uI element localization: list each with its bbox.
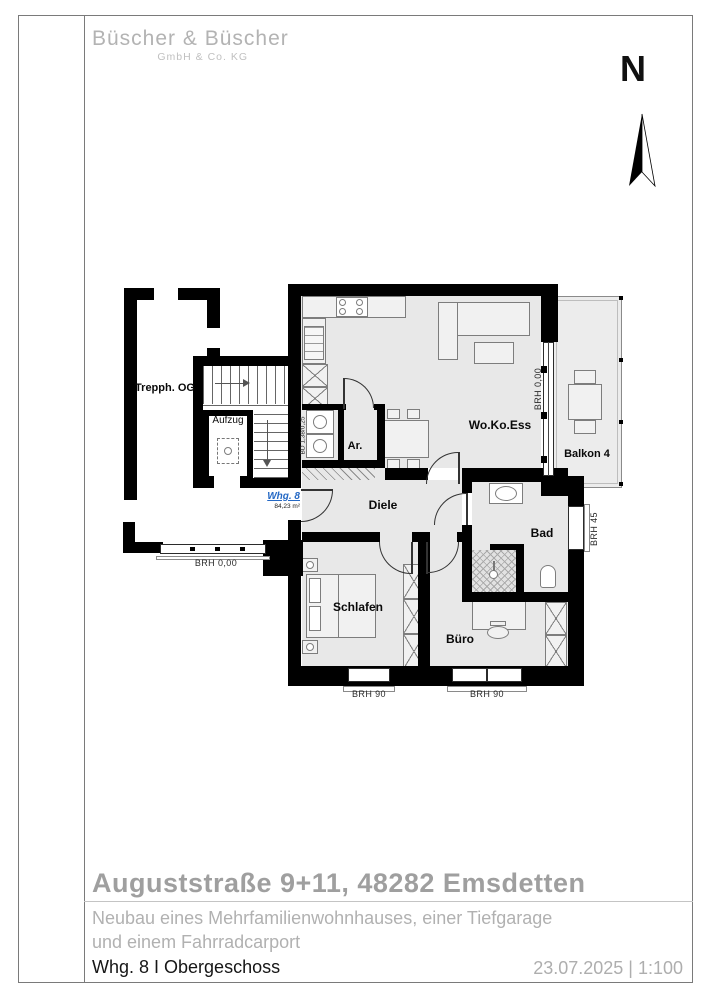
elevator-label: Aufzug xyxy=(205,415,251,426)
balcony-railing-post xyxy=(619,358,623,362)
adjacent-wall xyxy=(207,288,220,328)
wall xyxy=(516,548,524,596)
burner-icon xyxy=(356,299,363,306)
adjacent-wall xyxy=(207,348,220,358)
adjacent-wall xyxy=(123,542,163,553)
office-label: Büro xyxy=(436,632,484,646)
stair-hall-window xyxy=(160,544,266,554)
desk-chair xyxy=(487,626,509,639)
window-tick xyxy=(240,547,245,551)
elevator-door-gap xyxy=(214,476,240,488)
dining-table xyxy=(383,420,429,458)
nightstand-lamp-icon xyxy=(306,561,314,569)
sheet-name: Whg. 8 I Obergeschoss xyxy=(92,957,280,978)
dryer-drum-icon xyxy=(313,439,327,453)
wall xyxy=(302,532,380,542)
wall xyxy=(288,666,584,686)
office-wardrobe xyxy=(545,602,567,635)
oven-icon xyxy=(304,326,324,360)
balcony-railing-post xyxy=(619,420,623,424)
company-logo-suffix: GmbH & Co. KG xyxy=(92,51,248,63)
wall xyxy=(338,404,344,468)
sheet-subtitle-line1: Neubau eines Mehrfamilienwohnhauses, ein… xyxy=(92,908,552,929)
bath-sink-basin xyxy=(495,486,517,501)
titleblock-divider xyxy=(84,901,693,902)
balcony-chair xyxy=(574,420,596,434)
storage-label: Ar. xyxy=(340,440,370,452)
stair-arrow-right xyxy=(243,379,250,387)
shower-stem xyxy=(493,561,495,571)
left-window-annotation: BRH 0,00 xyxy=(184,558,248,568)
toilet-icon xyxy=(540,565,556,588)
burner-icon xyxy=(356,308,363,315)
north-arrow-icon xyxy=(626,112,658,190)
stairwell-wall xyxy=(193,478,288,488)
window-tick xyxy=(190,547,195,551)
desk-chair-back xyxy=(490,621,506,626)
wall xyxy=(385,468,428,480)
north-label: N xyxy=(620,48,646,90)
balcony-railing-post xyxy=(619,482,623,486)
living-label: Wo.Ko.Ess xyxy=(450,418,550,432)
sheet-date-scale: 23.07.2025 | 1:100 xyxy=(413,958,683,979)
wall xyxy=(541,284,558,342)
balcony-railing-post xyxy=(619,296,623,300)
dining-chair xyxy=(407,409,420,419)
bath-window xyxy=(568,506,584,550)
doormat-hatch xyxy=(302,466,375,480)
sofa-side xyxy=(438,302,458,360)
bath-door-leaf xyxy=(466,493,468,525)
kitchen-tall-cabinet xyxy=(302,364,328,387)
company-logo: Büscher & Büscher xyxy=(92,27,289,51)
dining-chair xyxy=(387,409,400,419)
nightstand-lamp-icon xyxy=(306,643,314,651)
sheet-title: Auguststraße 9+11, 48282 Emsdetten xyxy=(92,868,585,899)
window-tick xyxy=(215,547,220,551)
living-door-leaf xyxy=(458,452,460,484)
binding-margin-line xyxy=(84,15,85,983)
wall xyxy=(462,525,472,592)
stair-arrow-down xyxy=(263,460,271,467)
stair-direction-line xyxy=(215,383,243,384)
bedroom-door-leaf xyxy=(411,542,413,574)
duct-annotation: BD 1,38/0,25 xyxy=(300,409,307,463)
burner-icon xyxy=(339,308,346,315)
wall xyxy=(462,482,472,493)
elevator-symbol-dot xyxy=(224,447,232,455)
adjacent-wall xyxy=(124,288,137,500)
burner-icon xyxy=(339,299,346,306)
wall xyxy=(490,544,524,550)
balcony-table xyxy=(568,384,602,420)
office-window-annotation: BRH 90 xyxy=(453,689,521,699)
balcony-glass-centerline xyxy=(548,342,549,476)
wall xyxy=(302,460,385,468)
stairwell-wall xyxy=(193,356,203,488)
balcony-chair xyxy=(574,370,596,384)
washer-drum-icon xyxy=(313,415,327,429)
coffee-table xyxy=(474,342,514,364)
glass-tick xyxy=(541,456,547,463)
stairwell-label: Trepph. OG xyxy=(128,382,202,394)
apartment-area-label: 84,23 m² xyxy=(250,503,300,510)
wall xyxy=(377,404,385,468)
office-wardrobe xyxy=(545,635,567,668)
balcony-label: Balkon 4 xyxy=(554,448,620,460)
wall xyxy=(288,284,558,296)
office-window-mullion xyxy=(486,668,488,682)
bedroom-window xyxy=(348,668,390,682)
stair-direction-line xyxy=(267,420,268,460)
apartment-id-label: Whg. 8 xyxy=(248,491,300,502)
bedroom-window-annotation: BRH 90 xyxy=(342,689,396,699)
hall-label: Diele xyxy=(358,498,408,512)
bath-label: Bad xyxy=(520,526,564,540)
stair-flight-lower xyxy=(254,406,288,478)
sheet-subtitle-line2: und einem Fahrradcarport xyxy=(92,932,300,953)
bath-window-annotation: BRH 45 xyxy=(589,507,599,551)
shower-drain-icon xyxy=(489,570,498,579)
bedroom-label: Schlafen xyxy=(316,600,400,614)
balcony-window-annotation: BRH 0,00 xyxy=(533,365,543,413)
drawing-sheet: Büscher & Büscher GmbH & Co. KG N xyxy=(0,0,707,1000)
